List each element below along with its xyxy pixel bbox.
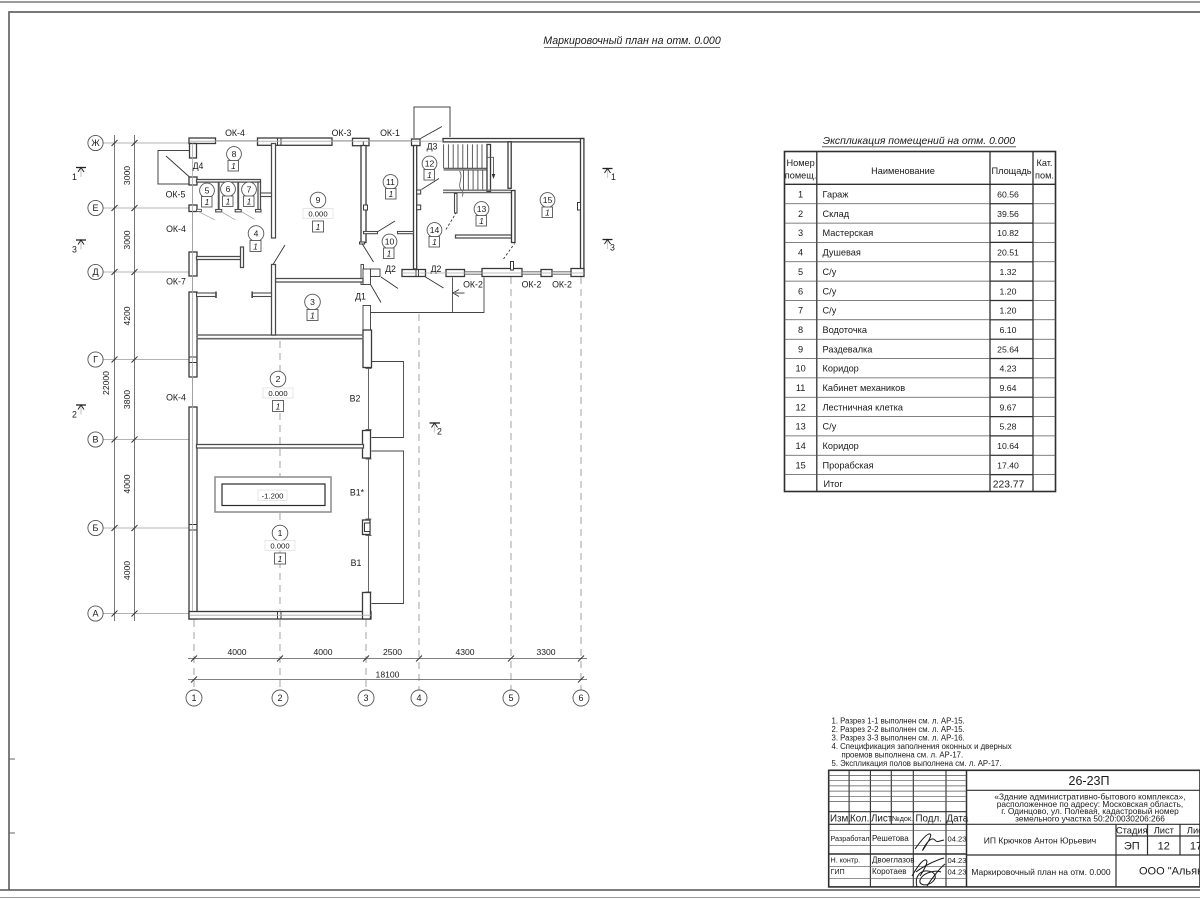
svg-text:4: 4 <box>254 229 259 239</box>
svg-text:13: 13 <box>477 204 487 214</box>
svg-text:Площадь: Площадь <box>992 166 1032 176</box>
svg-text:2: 2 <box>276 374 281 384</box>
svg-text:5: 5 <box>798 267 803 277</box>
svg-text:ОК-1: ОК-1 <box>380 128 400 138</box>
svg-text:Коридор: Коридор <box>823 364 859 374</box>
svg-text:Экспликация помещений на отм.: Экспликация помещений на отм. 0.000 <box>823 136 1015 147</box>
svg-text:Номер: Номер <box>786 158 814 168</box>
svg-text:3: 3 <box>310 297 315 307</box>
svg-text:6: 6 <box>578 693 583 703</box>
svg-text:3: 3 <box>798 228 803 238</box>
svg-text:Кабинет механиков: Кабинет механиков <box>823 383 906 393</box>
svg-text:Д1: Д1 <box>355 292 366 302</box>
svg-text:25.64: 25.64 <box>997 344 1019 354</box>
svg-text:1: 1 <box>389 189 394 199</box>
svg-text:Г: Г <box>93 355 98 365</box>
svg-text:С/у: С/у <box>823 267 837 277</box>
svg-text:11: 11 <box>796 383 806 393</box>
svg-text:земельного участка 50:20:00302: земельного участка 50:20:0030206:266 <box>1015 813 1165 823</box>
svg-text:1: 1 <box>205 197 210 207</box>
svg-text:12: 12 <box>795 402 805 412</box>
svg-text:20.51: 20.51 <box>997 248 1019 258</box>
svg-text:Двоеглазов: Двоеглазов <box>872 855 915 864</box>
svg-text:Изм.: Изм. <box>830 814 851 825</box>
svg-text:1: 1 <box>310 310 315 320</box>
svg-text:2: 2 <box>798 209 803 219</box>
svg-text:Лист: Лист <box>871 814 893 825</box>
svg-text:С/у: С/у <box>823 422 837 432</box>
svg-text:1: 1 <box>427 170 432 180</box>
svg-text:26-23П: 26-23П <box>1069 774 1110 788</box>
svg-text:1: 1 <box>432 237 437 247</box>
svg-text:60.56: 60.56 <box>997 190 1019 200</box>
svg-text:12: 12 <box>1158 841 1170 853</box>
svg-text:1: 1 <box>231 161 236 171</box>
svg-text:Мастерская: Мастерская <box>823 228 874 238</box>
svg-text:18100: 18100 <box>376 669 400 679</box>
svg-text:Лист: Лист <box>1187 826 1200 836</box>
svg-text:15: 15 <box>795 460 805 470</box>
svg-text:Д: Д <box>92 267 98 277</box>
svg-text:6: 6 <box>798 286 803 296</box>
svg-text:4000: 4000 <box>313 647 332 657</box>
svg-text:17.40: 17.40 <box>997 460 1019 470</box>
svg-text:1: 1 <box>247 197 252 207</box>
svg-text:Кол.: Кол. <box>850 814 869 825</box>
svg-text:0.000: 0.000 <box>270 542 289 551</box>
svg-text:1: 1 <box>278 528 283 538</box>
svg-text:Наименование: Наименование <box>871 166 935 176</box>
svg-text:17: 17 <box>1190 841 1200 853</box>
svg-text:10.82: 10.82 <box>997 228 1019 238</box>
svg-text:1: 1 <box>276 401 281 411</box>
svg-text:1: 1 <box>278 554 283 564</box>
svg-text:3000: 3000 <box>122 166 132 185</box>
svg-text:6.10: 6.10 <box>1000 325 1017 335</box>
svg-text:А: А <box>92 609 98 619</box>
svg-text:3800: 3800 <box>122 390 132 409</box>
svg-text:6: 6 <box>226 184 231 194</box>
svg-text:1: 1 <box>479 216 484 226</box>
svg-text:ИП Крючков Антон Юрьевич: ИП Крючков Антон Юрьевич <box>984 835 1096 845</box>
svg-text:1: 1 <box>253 241 258 251</box>
svg-text:13: 13 <box>795 422 805 432</box>
svg-text:1: 1 <box>798 190 803 200</box>
svg-text:14: 14 <box>430 225 440 235</box>
svg-text:Д4: Д4 <box>193 161 204 171</box>
svg-text:1: 1 <box>611 172 616 182</box>
svg-text:3: 3 <box>72 245 77 255</box>
svg-text:4000: 4000 <box>227 647 246 657</box>
svg-text:9.64: 9.64 <box>1000 383 1017 393</box>
svg-text:4: 4 <box>798 248 803 258</box>
svg-text:1: 1 <box>387 249 392 259</box>
svg-text:ОК-5: ОК-5 <box>166 190 186 200</box>
svg-text:2: 2 <box>72 410 77 420</box>
svg-text:Подл.: Подл. <box>916 814 942 825</box>
svg-text:Коридор: Коридор <box>823 441 859 451</box>
svg-text:04.23: 04.23 <box>948 856 967 865</box>
svg-text:10: 10 <box>385 237 395 247</box>
svg-text:10.64: 10.64 <box>997 441 1019 451</box>
svg-text:223.77: 223.77 <box>993 480 1025 491</box>
svg-text:Е: Е <box>92 203 98 213</box>
svg-text:В2: В2 <box>350 394 361 404</box>
svg-text:Маркировочный план на отм. 0.0: Маркировочный план на отм. 0.000 <box>971 867 1111 877</box>
svg-text:4300: 4300 <box>455 647 474 657</box>
svg-text:ОК-4: ОК-4 <box>166 393 186 403</box>
svg-text:4.23: 4.23 <box>1000 364 1017 374</box>
svg-text:В1: В1 <box>351 558 362 568</box>
svg-text:Д3: Д3 <box>427 142 438 152</box>
svg-text:Прорабская: Прорабская <box>823 460 874 470</box>
svg-text:ОК-2: ОК-2 <box>463 280 483 290</box>
svg-text:Склад: Склад <box>823 209 850 219</box>
svg-text:помещ.: помещ. <box>785 171 817 181</box>
svg-text:1: 1 <box>316 222 321 232</box>
svg-text:1.32: 1.32 <box>1000 267 1017 277</box>
svg-text:В1*: В1* <box>350 488 365 498</box>
svg-text:Лестничная клетка: Лестничная клетка <box>823 402 904 412</box>
svg-text:4: 4 <box>416 693 421 703</box>
svg-text:4200: 4200 <box>122 306 132 325</box>
svg-text:4000: 4000 <box>122 561 132 580</box>
svg-text:ОК-4: ОК-4 <box>225 128 245 138</box>
svg-text:3300: 3300 <box>536 647 555 657</box>
svg-text:ОК-3: ОК-3 <box>332 128 352 138</box>
svg-text:3: 3 <box>610 243 615 253</box>
svg-text:2: 2 <box>437 427 442 437</box>
svg-text:Стадия: Стадия <box>1116 826 1148 836</box>
svg-text:15: 15 <box>543 195 553 205</box>
svg-text:22000: 22000 <box>101 371 111 395</box>
svg-text:5: 5 <box>508 693 513 703</box>
svg-text:1.20: 1.20 <box>1000 306 1017 316</box>
svg-text:Лист: Лист <box>1154 826 1175 836</box>
svg-text:Коротаев: Коротаев <box>872 867 907 876</box>
svg-text:-1.200: -1.200 <box>262 491 284 500</box>
svg-text:Гараж: Гараж <box>823 190 850 200</box>
svg-text:9: 9 <box>316 195 321 205</box>
svg-text:1: 1 <box>72 172 77 182</box>
svg-text:Решетова: Решетова <box>872 834 909 843</box>
svg-text:14: 14 <box>795 441 805 451</box>
svg-text:39.56: 39.56 <box>997 209 1019 219</box>
svg-text:ГИП: ГИП <box>831 867 845 876</box>
svg-text:Душевая: Душевая <box>823 248 861 258</box>
svg-text:1: 1 <box>191 693 196 703</box>
svg-text:№док.: №док. <box>892 814 913 823</box>
svg-text:4000: 4000 <box>122 474 132 493</box>
svg-text:ОК-2: ОК-2 <box>552 280 572 290</box>
svg-text:5.28: 5.28 <box>1000 422 1017 432</box>
svg-text:Ж: Ж <box>91 138 100 148</box>
svg-text:С/у: С/у <box>823 306 837 316</box>
svg-text:ООО "Альянс": ООО "Альянс" <box>1139 866 1200 878</box>
svg-text:04.23: 04.23 <box>948 834 967 843</box>
svg-text:Водоточка: Водоточка <box>823 325 868 335</box>
svg-text:Н. контр.: Н. контр. <box>831 855 861 864</box>
svg-text:8: 8 <box>232 149 237 159</box>
svg-text:ЭП: ЭП <box>1124 841 1140 853</box>
svg-text:2500: 2500 <box>383 647 402 657</box>
svg-text:12: 12 <box>425 159 435 169</box>
svg-text:пом.: пом. <box>1035 171 1054 181</box>
svg-text:5. Экспликация полов выполнена: 5. Экспликация полов выполнена см. л. АР… <box>832 759 1002 768</box>
svg-text:Разработал: Разработал <box>831 834 870 843</box>
svg-text:5: 5 <box>205 186 210 196</box>
svg-text:0.000: 0.000 <box>268 389 287 398</box>
svg-text:8: 8 <box>798 325 803 335</box>
svg-text:7: 7 <box>798 306 803 316</box>
svg-text:3000: 3000 <box>122 230 132 249</box>
svg-text:04.23: 04.23 <box>948 868 967 877</box>
svg-text:Итог: Итог <box>824 479 844 489</box>
svg-text:Б: Б <box>93 523 99 533</box>
svg-text:ОК-7: ОК-7 <box>166 277 186 287</box>
svg-text:Д2: Д2 <box>385 264 396 274</box>
svg-text:Кат.: Кат. <box>1036 158 1052 168</box>
svg-text:0.000: 0.000 <box>308 210 327 219</box>
svg-text:Дата: Дата <box>947 814 969 825</box>
svg-text:ОК-2: ОК-2 <box>522 280 542 290</box>
svg-text:1: 1 <box>226 197 231 207</box>
svg-text:Д2: Д2 <box>431 264 442 274</box>
svg-text:Раздевалка: Раздевалка <box>823 344 874 354</box>
svg-text:11: 11 <box>386 177 395 187</box>
svg-text:9.67: 9.67 <box>1000 402 1017 412</box>
svg-text:7: 7 <box>247 185 252 195</box>
svg-text:ОК-4: ОК-4 <box>166 224 186 234</box>
svg-text:1: 1 <box>545 208 550 218</box>
svg-text:10: 10 <box>795 364 805 374</box>
svg-text:Маркировочный план на отм. 0.0: Маркировочный план на отм. 0.000 <box>543 35 721 47</box>
svg-text:3: 3 <box>363 693 368 703</box>
svg-text:1.20: 1.20 <box>1000 286 1017 296</box>
svg-text:С/у: С/у <box>823 286 837 296</box>
svg-text:9: 9 <box>798 344 803 354</box>
svg-text:2: 2 <box>277 693 282 703</box>
svg-text:В: В <box>92 435 98 445</box>
